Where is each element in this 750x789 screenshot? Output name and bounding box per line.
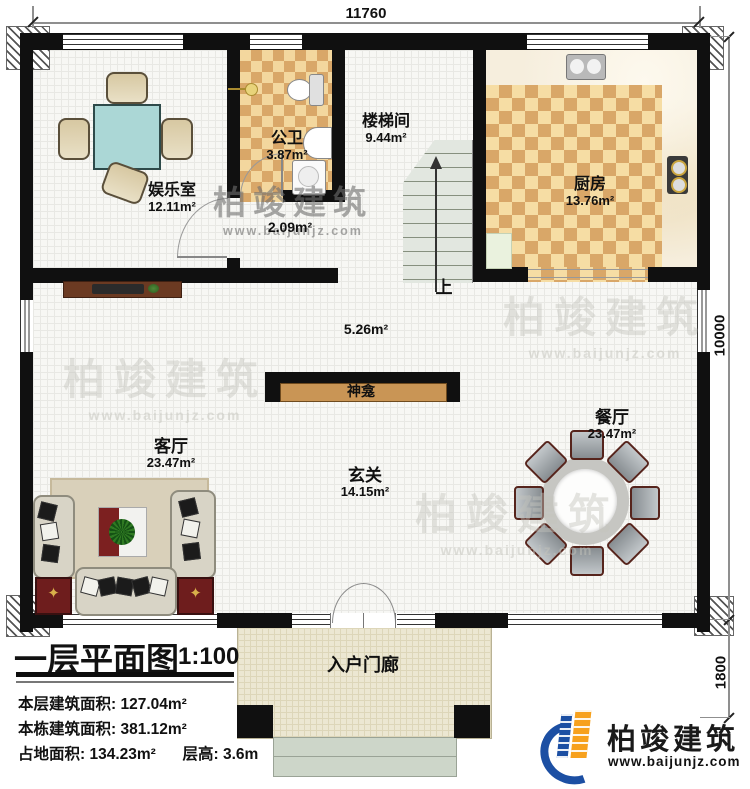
- chair: [106, 72, 148, 104]
- window-south-dining: [508, 614, 662, 628]
- dining-chair: [630, 486, 660, 520]
- entry-door-jamb: [395, 613, 396, 628]
- stairs-up-label: 上: [424, 278, 464, 297]
- south-wall-segment: [20, 613, 63, 628]
- plant: [148, 284, 159, 293]
- company-logo: 柏竣建筑 www.baijunjz.com: [535, 708, 745, 780]
- stairs-arrow-head: [430, 156, 442, 169]
- dimension-top: 11760: [316, 5, 416, 22]
- sink-basin: [570, 59, 584, 74]
- kitchen-stove: [667, 156, 688, 194]
- room-label-dining: 餐厅 23.47m²: [552, 408, 672, 442]
- kitchen-south-wall-right: [648, 267, 710, 282]
- dimension-right-main: 10000: [712, 296, 729, 376]
- window-north-kitchen: [527, 34, 648, 49]
- plant: [109, 519, 135, 545]
- dining-chair: [514, 486, 544, 520]
- washer-drum: [298, 166, 319, 187]
- porch-column-right: [454, 705, 490, 738]
- room-label-stairwell: 楼梯间 9.44m²: [326, 113, 446, 145]
- stove-burner: [671, 177, 687, 193]
- pillow: [40, 522, 59, 541]
- window-east: [697, 290, 710, 352]
- title-row-1: 本层建筑面积: 127.04m²: [18, 692, 187, 714]
- window-north-2: [250, 34, 302, 49]
- kitchen-sink: [566, 54, 606, 80]
- dimension-extension: [699, 6, 701, 28]
- bathroom-west-wall: [227, 50, 240, 198]
- room-label-corridor: 2.09m²: [240, 220, 340, 236]
- side-table: ✦: [177, 577, 214, 615]
- room-label-shrine: 神龛: [306, 384, 416, 400]
- title-row-3: 占地面积: 134.23m² 层高: 3.6m: [18, 742, 258, 764]
- kitchen-door-track: [528, 277, 648, 278]
- logo-company-name: 柏竣建筑: [607, 716, 745, 758]
- stove-burner: [671, 160, 687, 176]
- south-wall-segment: [435, 613, 508, 628]
- dimension-extension: [32, 6, 34, 28]
- title-rule-thick: [16, 672, 234, 677]
- porch-step: [273, 737, 457, 758]
- right-dimension-line: [728, 37, 730, 718]
- floor-plan: 11760 10000 1800: [0, 0, 750, 789]
- kitchen-door-track: [528, 269, 648, 270]
- title-rule-thin: [16, 681, 234, 683]
- porch-step: [273, 756, 457, 777]
- pillow: [148, 576, 168, 596]
- window-south-living: [63, 614, 217, 628]
- entry-door-jamb: [330, 613, 331, 628]
- dining-chair: [570, 546, 604, 576]
- window-west: [20, 300, 33, 352]
- south-wall-segment: [217, 613, 292, 628]
- logo-website: www.baijunjz.com: [608, 754, 746, 769]
- pillow: [41, 544, 60, 563]
- side-table: ✦: [35, 577, 72, 615]
- room-label-kitchen: 厨房 13.76m²: [530, 176, 650, 208]
- title-row-2: 本栋建筑面积: 381.12m²: [18, 717, 187, 739]
- plan-scale: 1:100: [178, 643, 238, 671]
- chair: [161, 118, 193, 160]
- pillow: [182, 542, 201, 561]
- dimension-extension: [710, 619, 730, 620]
- tv: [92, 284, 144, 294]
- coffee-table: [98, 507, 147, 557]
- toilet-tank: [309, 74, 324, 106]
- game-table: [93, 104, 161, 170]
- pillow: [181, 519, 201, 539]
- entry-door-jamb: [363, 613, 364, 628]
- dimension-extension: [710, 36, 730, 37]
- room-label-hall: 5.26m²: [316, 322, 416, 338]
- shrine-name: 神龛: [306, 384, 416, 400]
- entry-sidelight-left: [292, 614, 330, 628]
- top-dimension-line: [33, 22, 700, 24]
- stairs-direction-arrow: [435, 168, 437, 292]
- room-label-porch: 入户门廊: [303, 655, 423, 675]
- kitchen-west-wall: [473, 50, 486, 267]
- room-label-foyer: 玄关 14.15m²: [305, 466, 425, 500]
- porch-column-left: [237, 705, 273, 738]
- room-label-bathroom: 公卫 3.87m²: [237, 130, 337, 162]
- window-north-1: [63, 34, 183, 49]
- chair: [58, 118, 90, 160]
- entertainment-door-leaf: [177, 256, 227, 258]
- room-label-living: 客厅 23.47m²: [111, 437, 231, 471]
- washing-machine: [292, 160, 326, 195]
- dimension-right-porch: 1800: [713, 643, 730, 703]
- south-wall-segment: [662, 613, 710, 628]
- light-fixture: [245, 83, 258, 96]
- dining-table-top: [553, 469, 617, 533]
- tv-console: [63, 281, 182, 298]
- entry-sidelight-right: [397, 614, 435, 628]
- kitchen-counter: [486, 233, 512, 269]
- sink-basin: [587, 59, 601, 74]
- kitchen-south-wall-left: [473, 267, 528, 282]
- room-label-entertainment: 娱乐室 12.11m²: [112, 182, 232, 214]
